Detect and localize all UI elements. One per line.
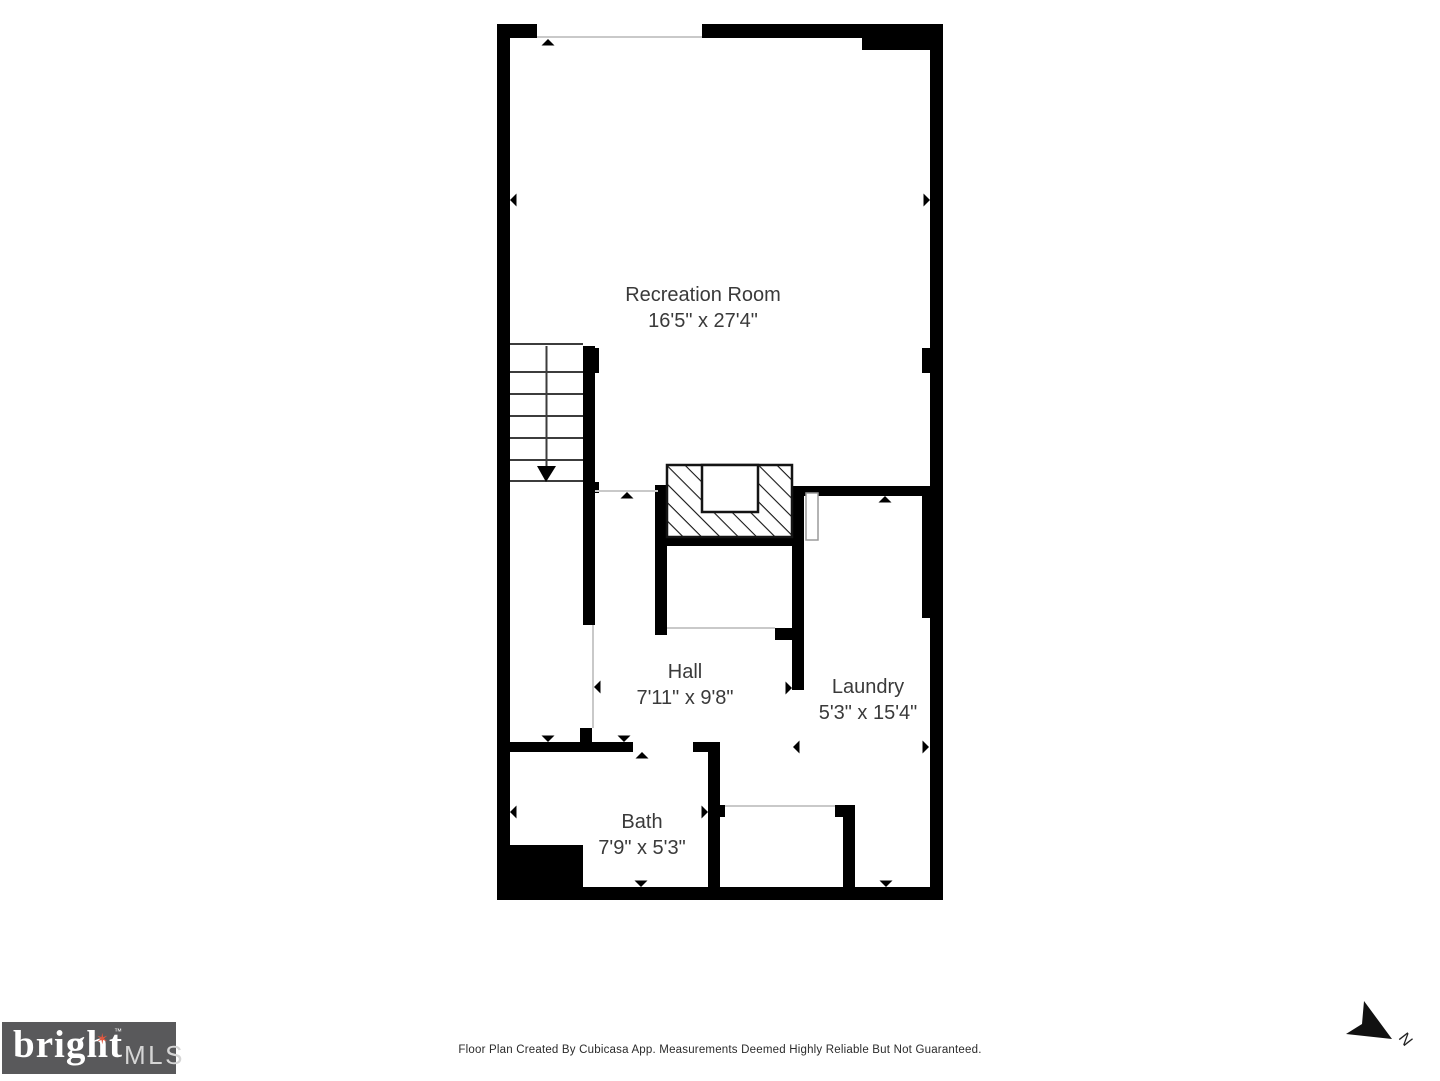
room-name: Recreation Room bbox=[553, 282, 853, 308]
logo-star-icon: ✶ bbox=[96, 1030, 109, 1048]
floor-plan-page: N Recreation Room 16'5" x 27'4" Hall 7'1… bbox=[0, 0, 1440, 1081]
stair-direction-arrow bbox=[537, 466, 556, 482]
staircase bbox=[510, 344, 583, 482]
fireplace-firebox bbox=[702, 465, 758, 512]
door-leaf bbox=[806, 493, 818, 540]
floor-plan-drawing: N bbox=[0, 0, 1440, 1081]
north-arrow-icon bbox=[1346, 1001, 1392, 1039]
room-dimensions: 7'9" x 5'3" bbox=[492, 835, 792, 861]
room-label-recreation: Recreation Room 16'5" x 27'4" bbox=[553, 282, 853, 334]
fireplace bbox=[667, 465, 792, 537]
room-label-laundry: Laundry 5'3" x 15'4" bbox=[718, 674, 1018, 726]
room-dimensions: 5'3" x 15'4" bbox=[718, 700, 1018, 726]
room-name: Bath bbox=[492, 809, 792, 835]
disclaimer-text: Floor Plan Created By Cubicasa App. Meas… bbox=[0, 1044, 1440, 1056]
compass: N bbox=[1346, 1001, 1415, 1050]
room-name: Laundry bbox=[718, 674, 1018, 700]
walls bbox=[497, 24, 943, 900]
logo-trademark: ™ bbox=[114, 1027, 122, 1036]
room-dimensions: 16'5" x 27'4" bbox=[553, 308, 853, 334]
brightmls-logo: bright ✶ ™ MLS bbox=[2, 1022, 176, 1074]
room-label-bath: Bath 7'9" x 5'3" bbox=[492, 809, 792, 861]
logo-mls-text: MLS bbox=[124, 1040, 185, 1071]
